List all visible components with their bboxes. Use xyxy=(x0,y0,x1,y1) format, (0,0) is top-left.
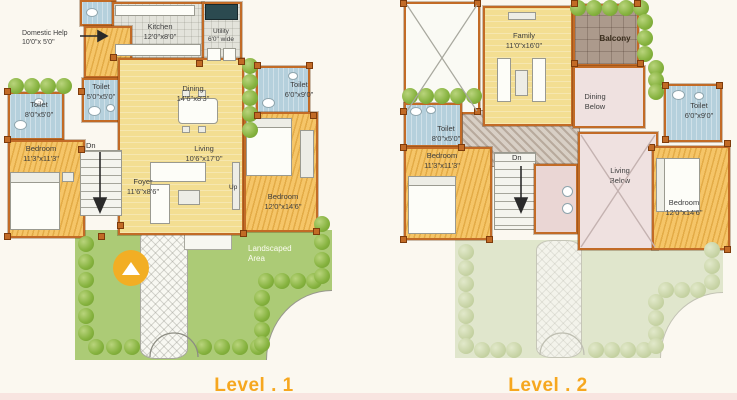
wall-pier xyxy=(716,82,723,89)
entry-marker-icon xyxy=(113,250,149,286)
bush-ghost-icon xyxy=(648,310,664,326)
label-toilet-left: Toilet8'0"x5'0" xyxy=(14,100,64,120)
wall-pier xyxy=(306,62,313,69)
bush-icon xyxy=(78,236,94,252)
bush-ghost-icon xyxy=(458,308,474,324)
label-landscaped-area: LandscapedArea xyxy=(248,244,302,265)
label-utility: Utility6'0" wide xyxy=(203,28,239,45)
bush-icon xyxy=(466,88,482,104)
bush-icon xyxy=(124,339,140,355)
label-family: Family11'0"x16'0" xyxy=(489,31,559,51)
bush-ghost-icon xyxy=(648,338,664,354)
wardrobe xyxy=(300,130,314,178)
entry-path-ghost xyxy=(536,240,582,358)
bush-icon xyxy=(418,88,434,104)
label-living: Living10'6"x17'0" xyxy=(174,144,234,164)
wall-pier xyxy=(4,136,11,143)
wall-pier xyxy=(400,0,407,7)
chair xyxy=(182,126,190,133)
bush-icon xyxy=(254,306,270,322)
wall-pier xyxy=(254,112,261,119)
side-table xyxy=(62,172,74,182)
wall-pier xyxy=(313,228,320,235)
kitchen-counter xyxy=(115,44,201,56)
wall-pier xyxy=(571,0,578,7)
bush-icon xyxy=(78,308,94,324)
basin-fixture xyxy=(288,72,298,80)
wall-pier xyxy=(310,112,317,119)
bush-ghost-icon xyxy=(704,242,720,258)
bush-icon xyxy=(78,290,94,306)
bush-icon xyxy=(196,339,212,355)
bush-icon xyxy=(40,78,56,94)
wall-pier xyxy=(458,144,465,151)
bush-ghost-icon xyxy=(648,294,664,310)
bush-icon xyxy=(214,339,230,355)
wall-pier xyxy=(254,62,261,69)
wall-pier xyxy=(400,144,407,151)
bush-ghost-icon xyxy=(458,260,474,276)
kitchen-counter xyxy=(115,5,195,16)
bush-ghost-icon xyxy=(588,342,604,358)
bush-ghost-icon xyxy=(604,342,620,358)
bush-icon xyxy=(290,273,306,289)
bush-icon xyxy=(242,74,258,90)
bush-icon xyxy=(314,234,330,250)
basin-fixture xyxy=(694,92,704,100)
wall-pier xyxy=(486,236,493,243)
label-dining-below: DiningBelow xyxy=(560,92,630,112)
wc-fixture xyxy=(410,107,422,116)
bush-ghost-icon xyxy=(506,342,522,358)
basin-fixture xyxy=(562,186,573,197)
bush-icon xyxy=(434,88,450,104)
wall-pier xyxy=(474,108,481,115)
stove xyxy=(205,4,238,20)
wall-pier xyxy=(238,58,245,65)
room-dresser xyxy=(534,164,578,234)
label-stairs-down-l2: Dn xyxy=(512,153,522,162)
wall-pier xyxy=(4,88,11,95)
bush-icon xyxy=(602,0,618,16)
basin-fixture xyxy=(106,104,115,112)
bush-icon xyxy=(78,272,94,288)
north-triangle-icon xyxy=(122,262,140,275)
console xyxy=(508,12,536,20)
wall-pier xyxy=(571,60,578,67)
coffee-table xyxy=(178,190,200,205)
washer xyxy=(207,48,221,61)
washer xyxy=(223,48,236,61)
label-bedroom-left: Bedroom11'3"x11'3" xyxy=(11,144,71,164)
wall-pier xyxy=(637,60,644,67)
bush-ghost-icon xyxy=(458,292,474,308)
wc-fixture xyxy=(86,8,98,17)
bush-icon xyxy=(314,252,330,268)
bush-ghost-icon xyxy=(620,342,636,358)
wall-pier xyxy=(117,222,124,229)
label-kitchen: Kitchen12'0"x8'0" xyxy=(130,22,190,42)
label-dining: Dining14'6"x8'3" xyxy=(163,84,223,104)
wc-fixture xyxy=(562,203,573,214)
bush-icon xyxy=(88,339,104,355)
floor-plan-sheet: Kitchen12'0"x8'0" Utility6'0" wide Toile… xyxy=(0,0,737,400)
pillow xyxy=(408,176,456,186)
bush-icon xyxy=(242,90,258,106)
bush-icon xyxy=(637,14,653,30)
sofa xyxy=(497,58,511,102)
label-toilet-right-l2: Toilet6'0"x9'0" xyxy=(669,101,729,121)
entry-path xyxy=(140,228,188,359)
label-stairs-up: Up xyxy=(229,184,237,191)
label-toilet-small: Toilet5'0"x5'0" xyxy=(76,82,126,102)
wc-fixture xyxy=(262,98,275,108)
wall-pier xyxy=(400,236,407,243)
pillow xyxy=(10,172,60,183)
label-bedroom-right: Bedroom12'0"x14'6" xyxy=(253,192,313,212)
bush-ghost-icon xyxy=(474,342,490,358)
label-toilet-left-l2: Toilet8'0"x5'0" xyxy=(416,124,476,144)
label-foyer: Foyer11'6"x8'6" xyxy=(113,177,173,197)
bottom-accent-strip xyxy=(0,393,737,400)
bush-icon xyxy=(56,78,72,94)
wall-pier xyxy=(724,140,731,147)
bush-icon xyxy=(78,254,94,270)
wall-pier xyxy=(400,108,407,115)
chair xyxy=(198,126,206,133)
wall-pier xyxy=(196,60,203,67)
basin-fixture xyxy=(426,106,436,114)
wall-pier xyxy=(724,246,731,253)
bush-icon xyxy=(232,339,248,355)
bush-icon xyxy=(274,273,290,289)
label-stairs-down: Dn xyxy=(86,141,96,150)
bush-ghost-icon xyxy=(704,258,720,274)
wc-fixture xyxy=(88,106,101,116)
wc-fixture xyxy=(672,90,685,100)
bush-icon xyxy=(618,0,634,16)
wall-pier xyxy=(662,82,669,89)
room-living-below xyxy=(578,132,658,250)
bush-ghost-icon xyxy=(458,276,474,292)
sofa xyxy=(532,58,546,102)
staircase-l2 xyxy=(494,152,536,230)
wall-pier xyxy=(662,136,669,143)
wall-pier xyxy=(474,0,481,7)
wall-pier xyxy=(634,0,641,7)
bush-icon xyxy=(258,273,274,289)
bush-icon xyxy=(402,88,418,104)
bush-icon xyxy=(450,88,466,104)
label-bedroom-right-l2: Bedroom12'0"x14'6" xyxy=(654,198,714,218)
wall-pier xyxy=(78,146,85,153)
annotation-domestic-help: Domestic Help10'0"x 5'0" xyxy=(22,29,80,47)
bush-icon xyxy=(24,78,40,94)
bush-ghost-icon xyxy=(674,282,690,298)
bush-icon xyxy=(106,339,122,355)
wall-pier xyxy=(98,233,105,240)
wall-pier xyxy=(4,233,11,240)
wall-pier xyxy=(240,230,247,237)
bush-icon xyxy=(314,268,330,284)
wc-fixture xyxy=(14,120,27,130)
coffee-table xyxy=(515,70,528,96)
wall-pier xyxy=(110,54,117,61)
bush-icon xyxy=(254,290,270,306)
bush-ghost-icon xyxy=(490,342,506,358)
bush-icon xyxy=(586,0,602,16)
bush-icon xyxy=(242,122,258,138)
label-bedroom-left-l2: Bedroom11'3"x11'3" xyxy=(412,151,472,171)
label-toilet-right: Toilet6'0"x9'0" xyxy=(274,80,324,100)
label-balcony: Balcony xyxy=(580,34,650,44)
bush-icon xyxy=(78,325,94,341)
bush-icon xyxy=(254,336,270,352)
label-living-below: LivingBelow xyxy=(590,166,650,186)
bush-ghost-icon xyxy=(458,244,474,260)
wall-pier xyxy=(648,144,655,151)
bush-ghost-icon xyxy=(704,274,720,290)
bush-ghost-icon xyxy=(458,338,474,354)
